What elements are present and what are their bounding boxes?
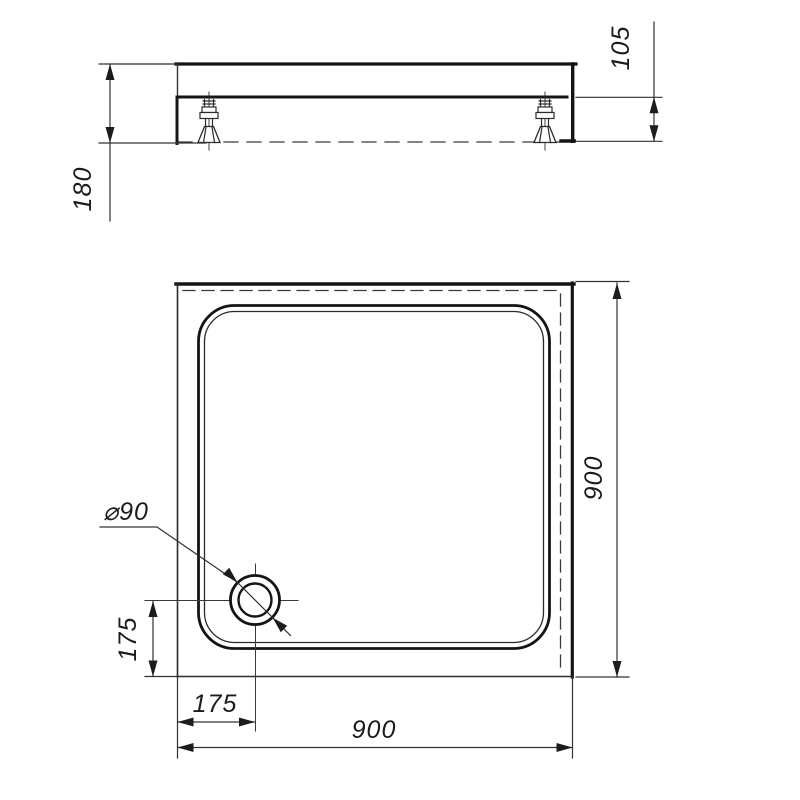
right-foot-cone [534,127,556,143]
dim-180-label: 180 [69,167,97,212]
left-foot-nut-upper [202,107,216,113]
right-foot [534,92,556,150]
dim-900-right-label: 900 [580,456,608,501]
dim-175-horizontal-label: 175 [193,690,238,718]
drain-diameter-label: ⌀90 [103,498,149,526]
dim-180-arrow-down [106,127,115,143]
dim-900r-arrow-down [613,661,622,677]
technical-drawing-sheet: 180 105 ⌀90 [0,0,800,800]
left-foot-cone [198,127,220,143]
dim-175-vertical-label: 175 [114,617,142,662]
dim-175-vertical [145,601,177,677]
dim-180 [99,64,206,221]
left-foot-nut-lower [200,113,218,119]
dim-900b-arrow-right [557,743,573,752]
drain-leader-arrow-upper [223,568,238,583]
shower-tray-drawing: 180 105 ⌀90 [0,0,800,800]
dim-900r-arrow-up [613,283,622,299]
dim-900-bottom-label: 900 [352,716,397,744]
dim-175v-arrow-up [149,601,158,617]
dim-900b-arrow-left [178,743,194,752]
plan-view: ⌀90 175 175 900 9 [100,282,629,759]
dim-180-arrow-up [106,64,115,80]
dim-105-label: 105 [607,26,635,71]
right-foot-nut-upper [538,107,552,113]
side-view: 180 105 [69,22,662,221]
dim-175v-arrow-down [149,661,158,677]
dim-175h-arrow-right [239,718,255,727]
dim-175h-arrow-left [178,718,194,727]
dim-105-arrow-up [650,97,659,113]
right-foot-nut-lower [536,113,554,119]
left-foot [198,92,220,150]
dim-105-arrow-down [650,125,659,141]
